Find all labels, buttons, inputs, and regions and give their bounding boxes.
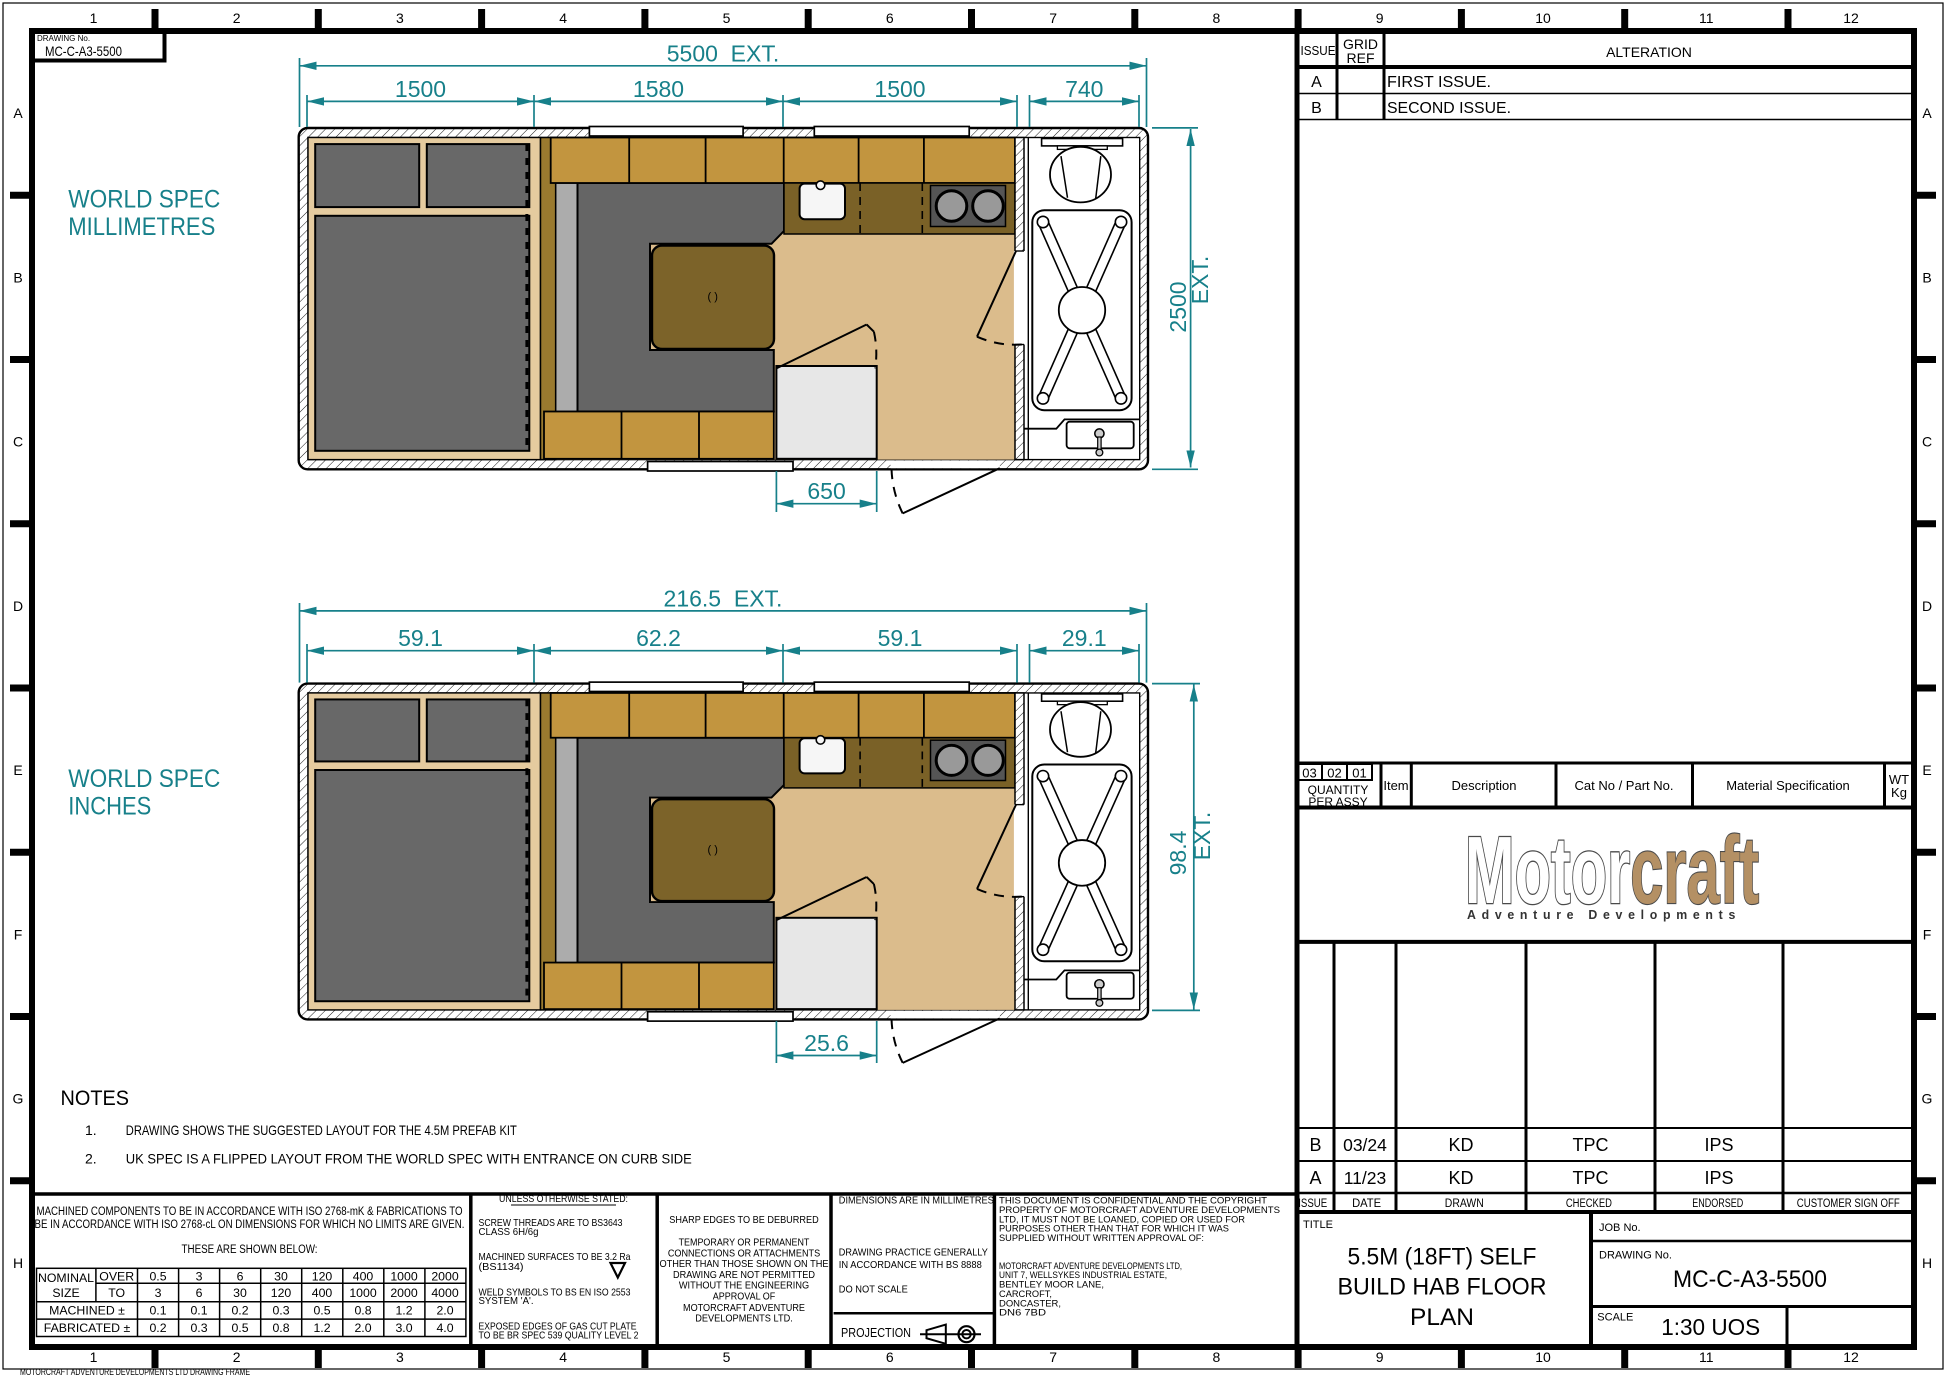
svg-text:ISSUE: ISSUE xyxy=(1301,43,1336,58)
svg-text:IPS: IPS xyxy=(1704,1168,1733,1188)
svg-text:12: 12 xyxy=(1843,1349,1859,1365)
svg-text:0.8: 0.8 xyxy=(354,1304,371,1318)
svg-text:DIMENSIONS ARE IN MILLIMETRES: DIMENSIONS ARE IN MILLIMETRES xyxy=(839,1195,994,1207)
svg-text:SUPPLIED WITHOUT WRITTEN APPRO: SUPPLIED WITHOUT WRITTEN APPROVAL OF: xyxy=(999,1233,1204,1244)
svg-text:E: E xyxy=(13,762,22,778)
svg-text:0.5: 0.5 xyxy=(313,1304,330,1318)
svg-text:SIZE: SIZE xyxy=(52,1286,79,1300)
svg-text:03/24: 03/24 xyxy=(1343,1135,1387,1155)
svg-text:WORLD SPEC: WORLD SPEC xyxy=(68,765,220,793)
svg-text:C: C xyxy=(1922,434,1932,450)
svg-text:Cat No / Part No.: Cat No / Part No. xyxy=(1575,778,1674,793)
svg-text:ENDORSED: ENDORSED xyxy=(1692,1198,1743,1210)
svg-text:5: 5 xyxy=(723,1349,731,1365)
svg-text:62.2: 62.2 xyxy=(636,625,681,651)
svg-text:Material Specification: Material Specification xyxy=(1726,778,1850,793)
svg-text:A: A xyxy=(13,105,23,121)
svg-text:2000: 2000 xyxy=(390,1286,418,1300)
svg-text:NOMINAL: NOMINAL xyxy=(38,1271,94,1285)
svg-text:Description: Description xyxy=(1451,778,1516,793)
svg-text:1000: 1000 xyxy=(390,1270,418,1284)
svg-text:6: 6 xyxy=(237,1270,244,1284)
svg-text:REF: REF xyxy=(1347,50,1375,66)
svg-text:98.4: 98.4 xyxy=(1165,830,1191,875)
svg-text:01: 01 xyxy=(1352,766,1366,781)
svg-text:THESE ARE SHOWN BELOW:: THESE ARE SHOWN BELOW: xyxy=(182,1242,318,1256)
svg-text:IN ACCORDANCE WITH BS 8888: IN ACCORDANCE WITH BS 8888 xyxy=(839,1259,982,1271)
svg-text:INCHES: INCHES xyxy=(68,793,151,821)
svg-text:MC-C-A3-5500: MC-C-A3-5500 xyxy=(1673,1266,1827,1293)
svg-text:0.1: 0.1 xyxy=(149,1304,166,1318)
svg-text:MILLIMETRES: MILLIMETRES xyxy=(68,213,215,241)
svg-text:400: 400 xyxy=(353,1270,374,1284)
svg-text:F: F xyxy=(14,926,23,942)
svg-text:KD: KD xyxy=(1448,1135,1473,1155)
svg-text:8: 8 xyxy=(1213,10,1221,26)
svg-text:1500: 1500 xyxy=(874,76,925,102)
svg-text:4: 4 xyxy=(559,1349,567,1365)
svg-text:PROJECTION: PROJECTION xyxy=(841,1326,911,1340)
svg-text:3.0: 3.0 xyxy=(395,1321,412,1335)
svg-text:5500 EXT.: 5500 EXT. xyxy=(667,40,780,66)
svg-text:DRAWING PRACTICE GENERALLY: DRAWING PRACTICE GENERALLY xyxy=(839,1246,988,1258)
svg-text:5.5M (18FT) SELF: 5.5M (18FT) SELF xyxy=(1348,1243,1537,1270)
svg-text:DRAWING No.: DRAWING No. xyxy=(37,34,90,43)
svg-text:2.0: 2.0 xyxy=(354,1321,371,1335)
svg-text:3: 3 xyxy=(155,1286,162,1300)
svg-text:Item: Item xyxy=(1383,778,1408,793)
svg-text:2.: 2. xyxy=(85,1150,97,1166)
svg-text:0.5: 0.5 xyxy=(231,1321,248,1335)
svg-text:(BS1134): (BS1134) xyxy=(479,1261,524,1273)
svg-text:B: B xyxy=(13,269,22,285)
svg-text:OVER: OVER xyxy=(99,1270,134,1284)
svg-text:EXT.: EXT. xyxy=(1189,812,1215,861)
svg-text:0.1: 0.1 xyxy=(190,1304,207,1318)
svg-text:DN6 7BD: DN6 7BD xyxy=(999,1308,1046,1319)
svg-text:59.1: 59.1 xyxy=(398,625,443,651)
svg-text:7: 7 xyxy=(1049,1349,1057,1365)
svg-text:C: C xyxy=(13,434,23,450)
svg-text:120: 120 xyxy=(312,1270,333,1284)
svg-text:9: 9 xyxy=(1376,10,1384,26)
svg-text:DATE: DATE xyxy=(1352,1198,1381,1210)
svg-text:740: 740 xyxy=(1065,76,1103,102)
svg-text:DEVELOPMENTS LTD.: DEVELOPMENTS LTD. xyxy=(695,1313,793,1325)
svg-text:SHARP EDGES TO BE DEBURRED: SHARP EDGES TO BE DEBURRED xyxy=(669,1214,819,1226)
svg-text:4.0: 4.0 xyxy=(436,1321,453,1335)
svg-text:11: 11 xyxy=(1699,10,1714,26)
svg-text:30: 30 xyxy=(233,1286,247,1300)
svg-text:3: 3 xyxy=(396,10,404,26)
svg-text:0.2: 0.2 xyxy=(231,1304,248,1318)
svg-text:2: 2 xyxy=(233,10,241,26)
svg-text:1.2: 1.2 xyxy=(313,1321,330,1335)
svg-text:DRAWING SHOWS THE SUGGESTED LA: DRAWING SHOWS THE SUGGESTED LAYOUT FOR T… xyxy=(126,1122,517,1138)
svg-text:2: 2 xyxy=(233,1349,241,1365)
svg-text:CHECKED: CHECKED xyxy=(1566,1198,1612,1210)
svg-text:D: D xyxy=(13,598,23,614)
svg-text:SCALE: SCALE xyxy=(1597,1312,1633,1324)
svg-text:UK SPEC IS A FLIPPED LAYOUT FR: UK SPEC IS A FLIPPED LAYOUT FROM THE WOR… xyxy=(126,1150,692,1166)
svg-text:TPC: TPC xyxy=(1573,1168,1609,1188)
svg-text:1580: 1580 xyxy=(633,76,684,102)
svg-text:0.5: 0.5 xyxy=(149,1270,166,1284)
svg-text:2.0: 2.0 xyxy=(436,1304,453,1318)
svg-text:5: 5 xyxy=(723,10,731,26)
svg-text:30: 30 xyxy=(274,1270,288,1284)
svg-text:MOTORCRAFT ADVENTURE DEVELOPME: MOTORCRAFT ADVENTURE DEVELOPMENTS LTD DR… xyxy=(20,1367,250,1376)
svg-text:29.1: 29.1 xyxy=(1062,625,1107,651)
svg-text:D: D xyxy=(1922,598,1932,614)
svg-text:12: 12 xyxy=(1843,10,1859,26)
svg-text:B: B xyxy=(1309,1135,1321,1155)
svg-text:1.2: 1.2 xyxy=(395,1304,412,1318)
svg-text:6: 6 xyxy=(196,1286,203,1300)
svg-text:SYSTEM 'A'.: SYSTEM 'A'. xyxy=(479,1295,534,1307)
svg-text:FABRICATED ±: FABRICATED ± xyxy=(44,1321,131,1335)
svg-text:10: 10 xyxy=(1535,10,1551,26)
svg-text:4: 4 xyxy=(559,10,567,26)
svg-text:B: B xyxy=(1922,269,1931,285)
svg-text:1: 1 xyxy=(90,1349,98,1365)
svg-text:BE IN ACCORDANCE WITH ISO 2768: BE IN ACCORDANCE WITH ISO 2768-cL ON DIM… xyxy=(35,1217,465,1231)
svg-text:A: A xyxy=(1311,74,1322,91)
svg-text:UNLESS OTHERWISE STATED:: UNLESS OTHERWISE STATED: xyxy=(499,1193,628,1205)
svg-text:3: 3 xyxy=(196,1270,203,1284)
svg-text:11: 11 xyxy=(1699,1349,1714,1365)
svg-text:DO NOT SCALE: DO NOT SCALE xyxy=(839,1283,908,1295)
svg-text:CLASS 6H/6g: CLASS 6H/6g xyxy=(479,1226,539,1238)
svg-text:120: 120 xyxy=(271,1286,292,1300)
svg-text:WORLD SPEC: WORLD SPEC xyxy=(68,186,220,214)
svg-text:A: A xyxy=(1309,1168,1321,1188)
svg-text:ISSUE: ISSUE xyxy=(1298,1198,1327,1210)
svg-text:1:30 UOS: 1:30 UOS xyxy=(1661,1314,1760,1340)
svg-text:Adventure Developments: Adventure Developments xyxy=(1467,907,1741,922)
svg-text:DRAWING No.: DRAWING No. xyxy=(1599,1249,1672,1261)
svg-text:02: 02 xyxy=(1327,766,1341,781)
svg-text:F: F xyxy=(1923,926,1932,942)
svg-text:6: 6 xyxy=(886,10,894,26)
svg-text:SECOND ISSUE.: SECOND ISSUE. xyxy=(1387,100,1511,117)
svg-text:TITLE: TITLE xyxy=(1303,1219,1333,1231)
svg-text:0.3: 0.3 xyxy=(190,1321,207,1335)
svg-text:1000: 1000 xyxy=(349,1286,377,1300)
svg-text:7: 7 xyxy=(1049,10,1057,26)
svg-text:EXT.: EXT. xyxy=(1187,256,1213,305)
svg-text:1.: 1. xyxy=(85,1122,97,1138)
svg-text:400: 400 xyxy=(312,1286,333,1300)
svg-text:FIRST ISSUE.: FIRST ISSUE. xyxy=(1387,74,1491,91)
svg-text:10: 10 xyxy=(1535,1349,1551,1365)
svg-text:KD: KD xyxy=(1448,1168,1473,1188)
svg-text:6: 6 xyxy=(886,1349,894,1365)
svg-text:1500: 1500 xyxy=(395,76,446,102)
svg-text:0.2: 0.2 xyxy=(149,1321,166,1335)
svg-text:G: G xyxy=(13,1091,24,1107)
svg-text:11/23: 11/23 xyxy=(1344,1168,1387,1188)
svg-text:B: B xyxy=(1311,100,1322,117)
svg-text:1: 1 xyxy=(90,10,98,26)
svg-text:25.6: 25.6 xyxy=(804,1030,849,1056)
svg-text:H: H xyxy=(1922,1255,1932,1271)
svg-text:DRAWN: DRAWN xyxy=(1445,1198,1484,1210)
svg-text:3: 3 xyxy=(396,1349,404,1365)
svg-text:TO: TO xyxy=(108,1286,125,1300)
svg-text:216.5 EXT.: 216.5 EXT. xyxy=(664,585,783,611)
svg-text:59.1: 59.1 xyxy=(878,625,923,651)
svg-text:TO BE BR SPEC 539 QUALITY LEVE: TO BE BR SPEC 539 QUALITY LEVEL 2 xyxy=(479,1329,639,1341)
svg-text:PLAN: PLAN xyxy=(1410,1304,1474,1331)
svg-text:Kg: Kg xyxy=(1891,785,1907,800)
svg-text:650: 650 xyxy=(807,478,845,504)
svg-text:TPC: TPC xyxy=(1573,1135,1609,1155)
svg-text:8: 8 xyxy=(1213,1349,1221,1365)
svg-text:E: E xyxy=(1922,762,1931,778)
svg-text:03: 03 xyxy=(1302,766,1316,781)
svg-text:4000: 4000 xyxy=(431,1286,459,1300)
svg-text:G: G xyxy=(1922,1091,1933,1107)
svg-text:ALTERATION: ALTERATION xyxy=(1606,44,1692,60)
svg-text:APPROVAL OF: APPROVAL OF xyxy=(713,1290,776,1302)
svg-text:CUSTOMER SIGN OFF: CUSTOMER SIGN OFF xyxy=(1797,1198,1900,1210)
svg-text:IPS: IPS xyxy=(1704,1135,1733,1155)
svg-text:NOTES: NOTES xyxy=(61,1086,130,1110)
svg-text:PER ASSY: PER ASSY xyxy=(1308,795,1367,809)
svg-text:0.8: 0.8 xyxy=(272,1321,289,1335)
svg-text:BUILD HAB FLOOR: BUILD HAB FLOOR xyxy=(1338,1274,1547,1301)
svg-text:2000: 2000 xyxy=(431,1270,459,1284)
svg-text:MC-C-A3-5500: MC-C-A3-5500 xyxy=(45,43,122,59)
svg-text:MACHINED ±: MACHINED ± xyxy=(49,1304,125,1318)
svg-text:9: 9 xyxy=(1376,1349,1384,1365)
svg-text:JOB No.: JOB No. xyxy=(1599,1222,1641,1234)
svg-text:H: H xyxy=(13,1255,23,1271)
svg-text:A: A xyxy=(1922,105,1932,121)
svg-text:0.3: 0.3 xyxy=(272,1304,289,1318)
